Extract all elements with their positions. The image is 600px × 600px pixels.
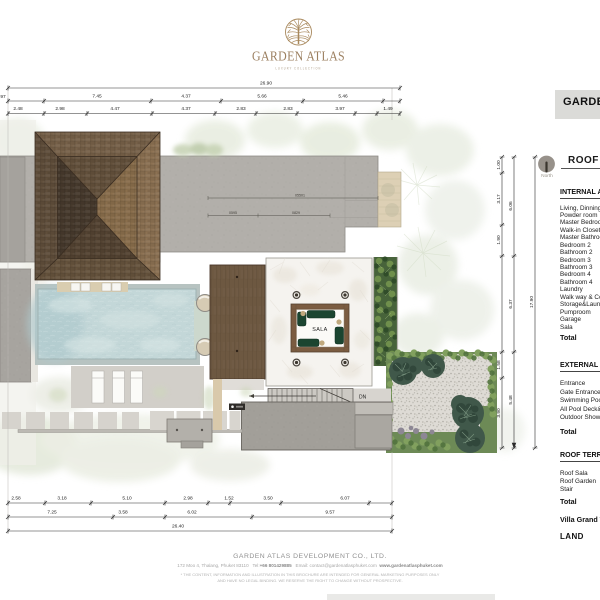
svg-text:SALA: SALA <box>312 327 327 333</box>
svg-text:2.58: 2.58 <box>11 496 21 502</box>
svg-text:6.02: 6.02 <box>187 510 197 516</box>
svg-text:6.06: 6.06 <box>508 201 514 211</box>
svg-text:4.37: 4.37 <box>181 106 191 112</box>
svg-text:0829: 0829 <box>292 211 300 215</box>
svg-text:2.83: 2.83 <box>236 106 246 112</box>
svg-text:1.58: 1.58 <box>496 360 502 370</box>
svg-text:2.83: 2.83 <box>283 106 293 112</box>
svg-text:3.58: 3.58 <box>118 510 128 516</box>
svg-text:26.40: 26.40 <box>172 524 184 530</box>
svg-text:9.57: 9.57 <box>325 510 335 516</box>
svg-text:1.52: 1.52 <box>224 496 234 502</box>
svg-text:5.10: 5.10 <box>122 496 132 502</box>
svg-text:4.47: 4.47 <box>110 106 120 112</box>
svg-text:2.98: 2.98 <box>55 106 65 112</box>
svg-text:0595: 0595 <box>229 211 237 215</box>
svg-text:5.48: 5.48 <box>508 395 514 405</box>
svg-text:26.90: 26.90 <box>260 81 272 87</box>
svg-text:5.66: 5.66 <box>257 94 267 100</box>
svg-text:1.00: 1.00 <box>496 160 502 170</box>
svg-text:1.97: 1.97 <box>0 94 6 100</box>
svg-text:3.17: 3.17 <box>496 194 502 204</box>
svg-text:GARDEN ATLAS: GARDEN ATLAS <box>252 50 345 65</box>
svg-text:4.37: 4.37 <box>181 94 191 100</box>
svg-text:7.25: 7.25 <box>47 510 57 516</box>
svg-text:1.90: 1.90 <box>496 235 502 245</box>
svg-text:3.18: 3.18 <box>57 496 67 502</box>
svg-text:DN: DN <box>359 395 367 401</box>
svg-text:LUXURY COLLECTION: LUXURY COLLECTION <box>276 67 322 71</box>
svg-text:3.90: 3.90 <box>496 408 502 418</box>
svg-text:1.49: 1.49 <box>383 106 393 112</box>
svg-text:17.90: 17.90 <box>529 296 535 308</box>
svg-text:2.98: 2.98 <box>183 496 193 502</box>
svg-text:3.97: 3.97 <box>335 106 345 112</box>
svg-text:05501: 05501 <box>295 194 305 198</box>
svg-text:5.46: 5.46 <box>338 94 348 100</box>
svg-text:6.07: 6.07 <box>340 496 350 502</box>
svg-text:3.50: 3.50 <box>263 496 273 502</box>
svg-text:2.48: 2.48 <box>13 106 23 112</box>
svg-text:7.45: 7.45 <box>92 94 102 100</box>
svg-text:6.37: 6.37 <box>508 299 514 309</box>
